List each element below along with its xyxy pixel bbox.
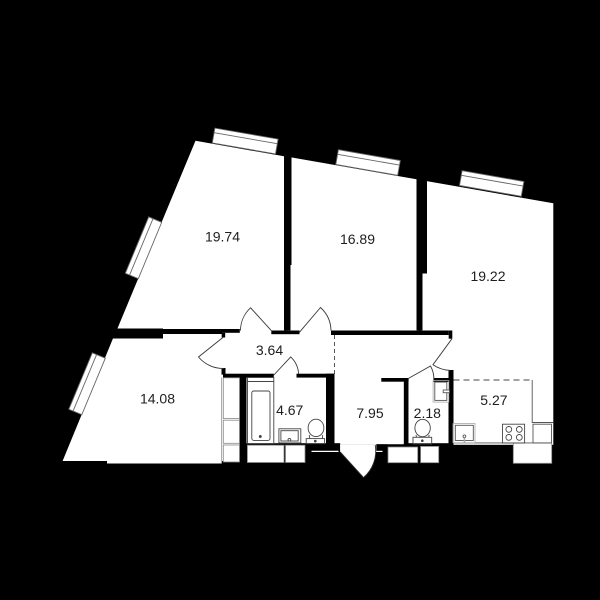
svg-text:2.18: 2.18 bbox=[414, 405, 441, 421]
svg-text:19.74: 19.74 bbox=[205, 228, 240, 244]
svg-text:3.64: 3.64 bbox=[256, 342, 283, 358]
svg-text:19.22: 19.22 bbox=[470, 268, 505, 284]
svg-text:5.27: 5.27 bbox=[480, 392, 507, 408]
svg-text:7.95: 7.95 bbox=[356, 405, 383, 421]
svg-text:14.08: 14.08 bbox=[140, 391, 175, 407]
svg-text:4.67: 4.67 bbox=[276, 402, 303, 418]
svg-text:16.89: 16.89 bbox=[340, 231, 375, 247]
